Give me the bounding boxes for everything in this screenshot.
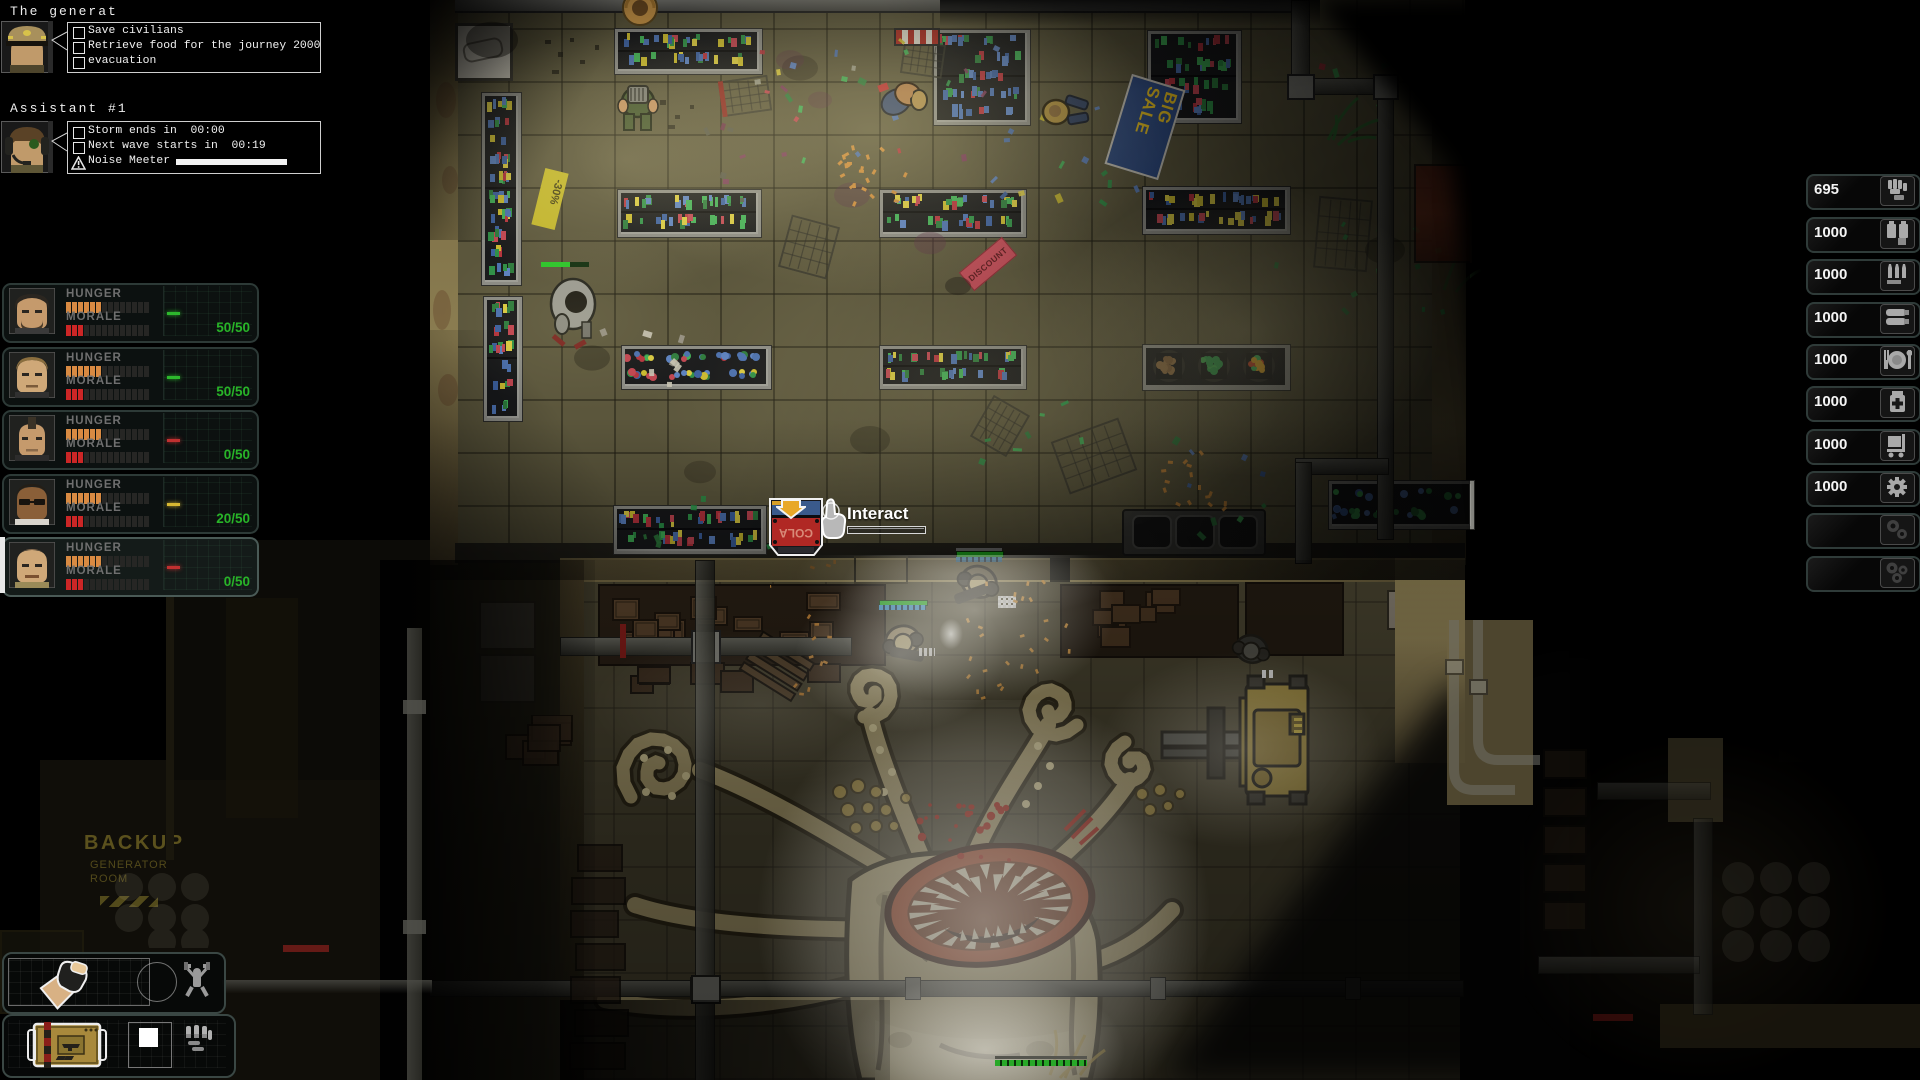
svg-text:COLA: COLA: [779, 526, 813, 540]
